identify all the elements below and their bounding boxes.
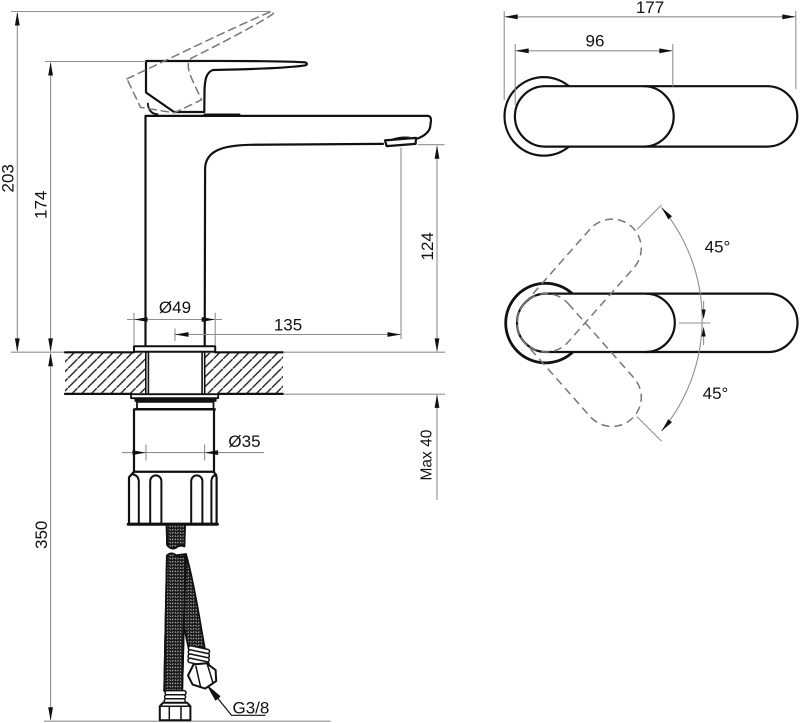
svg-text:350: 350: [32, 521, 51, 549]
svg-text:124: 124: [418, 232, 437, 260]
svg-text:203: 203: [0, 164, 18, 192]
svg-text:45°: 45°: [703, 384, 729, 403]
svg-text:Ø49: Ø49: [159, 298, 191, 317]
svg-text:45°: 45°: [705, 237, 731, 256]
svg-text:174: 174: [32, 191, 51, 219]
svg-text:G3/8: G3/8: [233, 699, 270, 718]
svg-text:135: 135: [274, 316, 302, 335]
svg-text:Max 40: Max 40: [419, 429, 436, 480]
svg-text:Ø35: Ø35: [228, 432, 260, 451]
svg-text:96: 96: [586, 32, 605, 51]
svg-text:177: 177: [636, 0, 664, 17]
